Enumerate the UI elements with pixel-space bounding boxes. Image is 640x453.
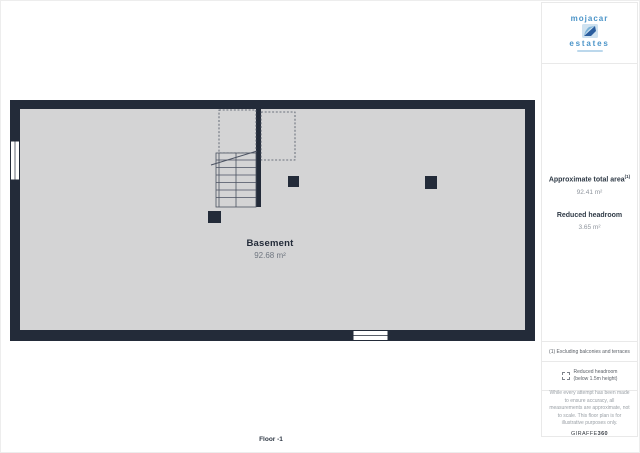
floor-plan-drawing [10,100,535,341]
window-left-wall [11,141,20,180]
legend-label: Reduced headroom (below 1.5m height) [574,369,618,383]
footnote: (1) Excluding balconies and terraces [542,342,637,362]
brand-light: GIRAFFE [571,431,598,437]
logo-text-bottom: estates [569,39,609,48]
total-area-value: 92.41 m² [577,189,603,196]
area-info-section: Approximate total area(1) 92.41 m² Reduc… [542,64,637,342]
column-pillar [288,176,299,187]
room-area-value: 92.68 m² [254,251,286,260]
brand-bold: 360 [598,431,608,437]
floor-number-label: Floor -1 [259,436,283,443]
total-area-label: Approximate total area [549,177,625,184]
disclaimer-text: While every attempt has been made to ens… [548,390,631,428]
legend: Reduced headroom (below 1.5m height) [542,362,637,391]
room-label: Basement [246,238,293,249]
staircase [211,151,257,207]
total-area-heading: Approximate total area(1) [549,174,630,183]
window-bottom-wall [353,331,388,341]
reduced-headroom-icon [562,372,570,380]
logo-text-top: mojacar [571,14,609,23]
giraffe360-brand: GIRAFFE360 [571,431,608,437]
mojacar-logo-icon [582,24,598,38]
headroom-heading: Reduced headroom [557,212,622,219]
logo-tagline [577,50,603,52]
agency-logo: mojacar estates [542,3,637,64]
column-pillar [425,176,437,189]
interior-wall [256,109,261,207]
column-pillar [208,211,221,223]
legend-line2: (below 1.5m height) [574,376,618,382]
total-area-footnote-marker: (1) [625,174,631,179]
headroom-value: 3.65 m² [578,224,600,231]
legend-line1: Reduced headroom [574,369,618,375]
floor-fill [10,100,535,341]
info-sidebar: mojacar estates Approximate total area(1… [541,2,638,437]
disclaimer-section: While every attempt has been made to ens… [542,391,637,436]
floor-plan: Basement 92.68 m² [10,100,535,341]
floorplan-page: Basement 92.68 m² Floor -1 mojacar estat… [0,0,640,453]
